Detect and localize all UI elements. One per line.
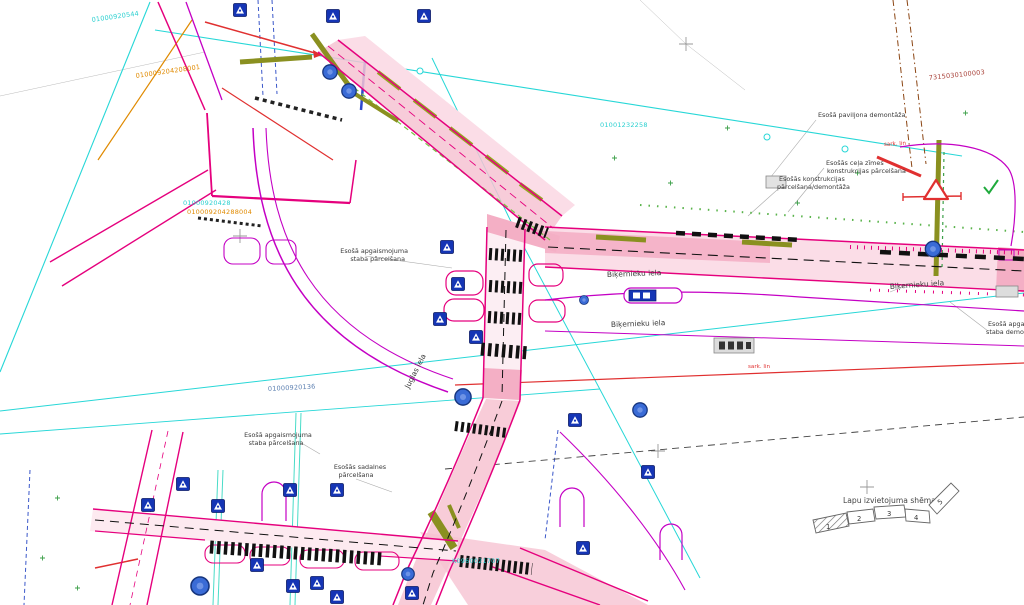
scheme-sheet-number: 3: [887, 510, 891, 518]
callout-lighting-pole-demolition: staba demontāža: [986, 328, 1024, 336]
manhole-icon: [633, 403, 647, 417]
cadastral-number: 7315030100003: [928, 68, 985, 82]
traffic-sign-icon: [569, 414, 582, 427]
bus-shelter-icon: [714, 338, 754, 353]
cadastral-number: 01000920544: [91, 9, 139, 24]
callout-structure-relocation: pārcelšana/demontāža: [777, 183, 850, 191]
sheet-scheme: Lapu izvietojuma shēma 1 2 3 4 5: [813, 483, 959, 533]
traffic-sign-icon: [642, 466, 655, 479]
scheme-sheet-number: 1: [826, 523, 830, 531]
traffic-sign-icon: [284, 484, 297, 497]
traffic-sign-icon: [287, 580, 300, 593]
cadastral-number: 01001232258: [600, 121, 648, 129]
manhole-icon: [191, 577, 209, 595]
traffic-sign-icon: [234, 4, 247, 17]
survey-cross-icon: [860, 480, 874, 494]
street-name: Biķernieku iela: [611, 318, 666, 330]
manhole-icon: [580, 296, 589, 305]
traffic-sign-icon: [434, 313, 447, 326]
traffic-sign-icon: [177, 478, 190, 491]
survey-cross-icon: [233, 229, 247, 243]
traffic-sign-icon: [441, 241, 454, 254]
callout-pavilion-demolition: Esošā paviljona demontāža: [818, 111, 905, 119]
callout-lighting-pole-relocation: Esošā apgaismojuma: [244, 431, 312, 439]
traffic-sign-icon: [418, 10, 431, 23]
callout-lighting-pole-demolition: Esošā apgaismojuma: [988, 320, 1024, 328]
callout-lighting-pole-relocation: Esošā apgaismojuma: [340, 247, 408, 255]
manhole-icon: [323, 65, 337, 79]
traffic-sign-icon: [577, 542, 590, 555]
traffic-sign-icon: [331, 591, 344, 604]
callout-lighting-pole-relocation: staba pārcelšana: [249, 439, 304, 447]
callout-road-sign-relocation: konstrukcijas pārcelšana: [827, 167, 906, 175]
cadastral-number: 01000920136: [268, 383, 316, 393]
red-line-abbreviation: sark. lin: [884, 141, 907, 148]
manholes: [191, 65, 941, 595]
drawing-canvas: 01000920544 010009204208001 01000920428 …: [0, 0, 1024, 605]
callout-structure-relocation: Esošās konstrukcijas: [779, 175, 846, 183]
manhole-icon: [925, 241, 940, 256]
callout-switchboard-relocation: pārcelšana: [339, 471, 374, 479]
callout-lighting-pole-relocation: staba pārcelšana: [350, 255, 405, 263]
scheme-sheet-number: 4: [914, 514, 918, 522]
scheme-sheet-1-current: [813, 513, 849, 533]
site-plan-svg: 01000920544 010009204208001 01000920428 …: [0, 0, 1024, 605]
traffic-sign-icon: [212, 500, 225, 513]
warning-triangle-icon: [924, 180, 948, 199]
traffic-sign-icon: [251, 559, 264, 572]
callout-switchboard-relocation: Esošās sadalnes: [334, 463, 387, 471]
manhole-icon: [402, 568, 415, 581]
shelter-footprint: [996, 286, 1018, 297]
traffic-sign-icon: [311, 577, 324, 590]
traffic-sign-icon: [452, 278, 465, 291]
survey-cross-icon: [651, 444, 665, 458]
road-fills: [90, 36, 1024, 605]
bus-stop-sign-icon: [629, 290, 656, 301]
manhole-icon: [455, 389, 471, 405]
street-name: Juglas iela: [402, 352, 428, 390]
scheme-title: Lapu izvietojuma shēma: [843, 496, 936, 505]
traffic-sign-icon: [142, 499, 155, 512]
traffic-sign-icon: [327, 10, 340, 23]
traffic-sign-icon: [406, 587, 419, 600]
cadastral-number: K0960021707: [452, 557, 500, 565]
street-name: Biķernieku iela: [607, 268, 662, 280]
manhole-icon: [342, 84, 356, 98]
traffic-sign-icon: [331, 484, 344, 497]
cadastral-number: 010009204288004: [187, 208, 252, 216]
red-line-abbreviation: sark. lin: [748, 364, 771, 370]
traffic-sign-icon: [470, 331, 483, 344]
cadastral-number: 01000920428: [183, 199, 231, 207]
scheme-sheet-number: 2: [857, 515, 861, 523]
